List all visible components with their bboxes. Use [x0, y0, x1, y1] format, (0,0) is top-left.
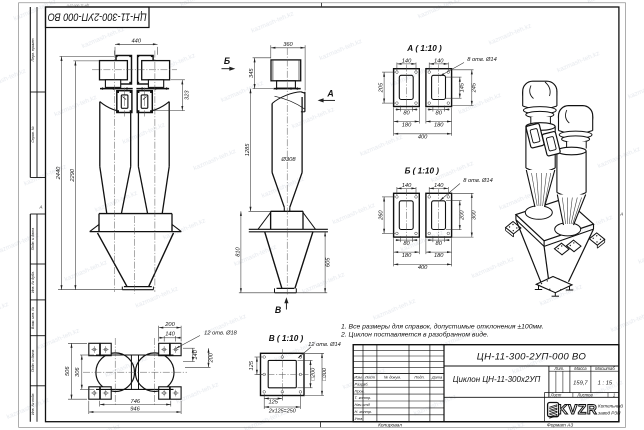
svg-text:Перв. примен.: Перв. примен. [31, 38, 35, 62]
svg-text:В: В [275, 305, 282, 315]
svg-text:1 : 15: 1 : 15 [598, 381, 613, 387]
svg-text:Масса: Масса [574, 366, 587, 371]
svg-text:440: 440 [132, 39, 142, 45]
svg-text:Т. контр.: Т. контр. [355, 395, 372, 400]
svg-text:200: 200 [460, 210, 466, 221]
svg-text:345: 345 [249, 68, 255, 78]
svg-text:140: 140 [434, 183, 444, 189]
svg-text:2. Циклон поставляется в разоб: 2. Циклон поставляется в разобранном вид… [340, 330, 489, 338]
svg-text:180: 180 [434, 253, 444, 259]
svg-text:Взам. инв. №: Взам. инв. № [31, 307, 35, 329]
svg-text:Лист: Лист [364, 375, 376, 380]
svg-text:12 отв. Ø14: 12 отв. Ø14 [308, 342, 341, 348]
svg-text:А: А [619, 212, 623, 217]
svg-text:Изм: Изм [354, 375, 362, 380]
svg-text:140: 140 [434, 58, 444, 64]
svg-text:8 отв. Ø14: 8 отв. Ø14 [467, 57, 497, 63]
svg-text:140: 140 [193, 349, 199, 359]
svg-text:810: 810 [235, 246, 241, 256]
svg-text:140: 140 [402, 183, 412, 189]
svg-text:А ( 1:10 ): А ( 1:10 ) [406, 44, 442, 53]
svg-text:Подп. и дата: Подп. и дата [31, 350, 35, 373]
svg-text:180: 180 [434, 122, 444, 128]
svg-text:506: 506 [65, 366, 71, 376]
svg-text:360: 360 [283, 42, 293, 48]
svg-text:2х125=250: 2х125=250 [268, 409, 296, 415]
svg-text:Б ( 1:10 ): Б ( 1:10 ) [405, 167, 440, 176]
svg-text:Инв. № подл.: Инв. № подл. [31, 393, 35, 415]
svg-text:1: 1 [613, 393, 615, 398]
svg-text:300: 300 [472, 210, 478, 220]
svg-text:Копировал: Копировал [378, 422, 402, 428]
svg-text:12 отв. Ø18: 12 отв. Ø18 [204, 330, 238, 336]
svg-text:Лит.: Лит. [553, 366, 564, 371]
svg-text:205: 205 [378, 82, 384, 93]
svg-text:80: 80 [403, 241, 410, 247]
svg-text:А: А [326, 89, 333, 99]
svg-text:Справ. №: Справ. № [31, 126, 35, 142]
svg-text:Б: Б [224, 56, 230, 66]
svg-text:125: 125 [268, 400, 278, 406]
svg-text:260: 260 [378, 210, 384, 221]
svg-text:159,7: 159,7 [573, 381, 588, 387]
svg-text:180: 180 [402, 253, 412, 259]
svg-text:Пров.: Пров. [355, 388, 365, 393]
svg-text:Лист: Лист [550, 393, 562, 398]
svg-text:245: 245 [472, 82, 478, 93]
svg-text:Подп.: Подп. [414, 375, 424, 380]
svg-text:А: А [38, 205, 42, 210]
svg-text:Нач.отд: Нач.отд [355, 402, 371, 407]
svg-text:200: 200 [164, 322, 175, 328]
svg-text:125: 125 [249, 360, 255, 370]
svg-text:200: 200 [209, 352, 215, 363]
svg-text:Котельный: Котельный [598, 403, 623, 409]
svg-text:306: 306 [75, 367, 81, 377]
svg-text:1. Все размеры для справок, до: 1. Все размеры для справок, допустимые о… [341, 323, 544, 331]
svg-text:1285: 1285 [245, 143, 251, 156]
svg-text:2440: 2440 [56, 166, 62, 180]
svg-text:Ø308: Ø308 [280, 157, 296, 163]
svg-text:180: 180 [402, 122, 412, 128]
svg-text:Листов: Листов [576, 393, 593, 398]
svg-text:946: 946 [130, 407, 140, 413]
svg-text:В ( 1:10 ): В ( 1:10 ) [269, 334, 304, 343]
svg-text:400: 400 [418, 135, 428, 141]
svg-text:Формат А3: Формат А3 [547, 422, 574, 428]
svg-text:KVZR: KVZR [558, 402, 598, 417]
svg-text:□200: □200 [310, 367, 316, 381]
svg-text:400: 400 [418, 265, 428, 271]
svg-text:605: 605 [326, 257, 332, 267]
svg-text:ЦН-11-300-2УП-000 ВО: ЦН-11-300-2УП-000 ВО [47, 11, 146, 23]
svg-text:746: 746 [131, 399, 141, 405]
svg-text:Подп. и дата: Подп. и дата [31, 228, 35, 251]
svg-text:140: 140 [165, 331, 175, 337]
svg-text:145: 145 [460, 82, 466, 92]
svg-text:323: 323 [184, 90, 190, 100]
svg-text:Масштаб: Масштаб [595, 366, 615, 371]
svg-text:2290: 2290 [70, 168, 76, 182]
svg-text:ЦН-11-300-2УП-000 ВО: ЦН-11-300-2УП-000 ВО [477, 351, 587, 362]
svg-text:Инв. № дубл.: Инв. № дубл. [31, 271, 35, 293]
svg-text:Циклон ЦН-11-300х2УП: Циклон ЦН-11-300х2УП [453, 375, 541, 384]
svg-text:Утв.: Утв. [355, 416, 364, 421]
svg-text:80: 80 [403, 111, 410, 117]
svg-text:№ докум.: № докум. [384, 375, 401, 380]
svg-text:80: 80 [436, 241, 443, 247]
svg-text:□300: □300 [322, 367, 328, 381]
svg-text:завод РЗП: завод РЗП [597, 411, 621, 416]
svg-text:80: 80 [436, 111, 443, 117]
svg-text:Н. контр.: Н. контр. [355, 409, 373, 414]
svg-text:Разраб.: Разраб. [355, 381, 369, 386]
svg-text:8 отв. Ø14: 8 отв. Ø14 [463, 178, 493, 184]
svg-text:140: 140 [402, 58, 412, 64]
svg-text:Дата: Дата [431, 375, 443, 380]
